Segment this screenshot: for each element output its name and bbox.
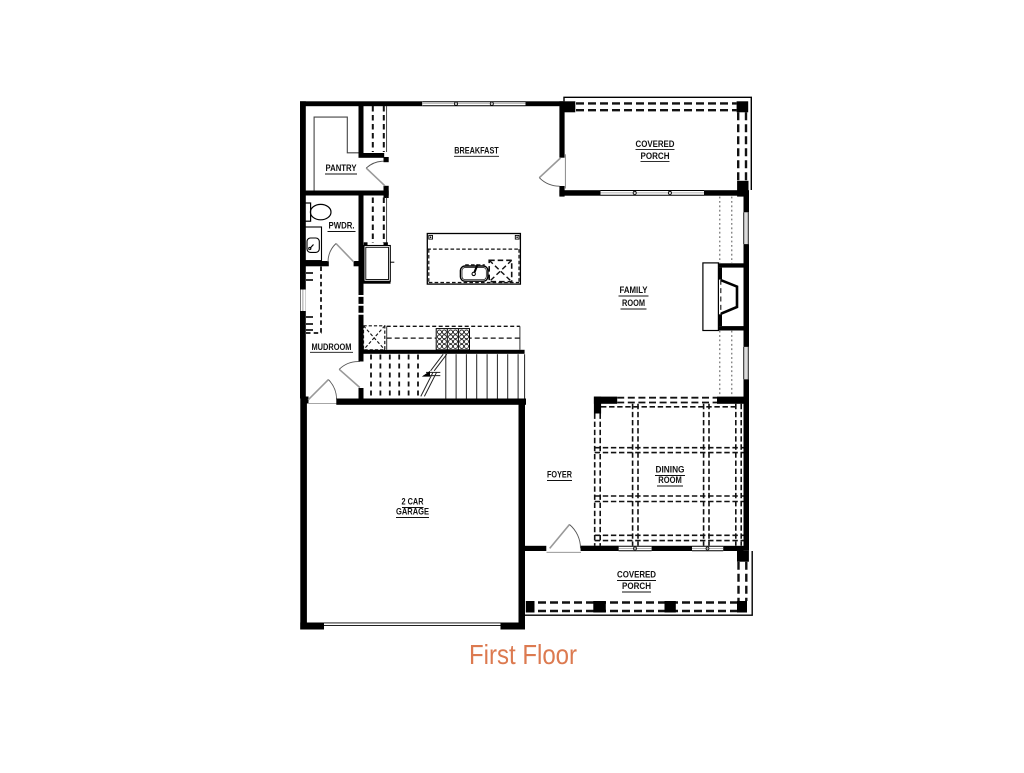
svg-text:First Floor: First Floor (469, 639, 577, 670)
svg-text:FAMILY: FAMILY (620, 285, 648, 295)
svg-text:ROOM: ROOM (622, 298, 645, 308)
svg-text:PORCH: PORCH (622, 581, 651, 591)
svg-text:GARAGE: GARAGE (396, 507, 429, 517)
svg-text:DINING: DINING (656, 465, 685, 475)
svg-text:ROOM: ROOM (658, 475, 682, 485)
svg-text:PANTRY: PANTRY (326, 163, 357, 173)
svg-text:FOYER: FOYER (547, 470, 572, 480)
svg-text:PORCH: PORCH (641, 151, 670, 161)
svg-text:COVERED: COVERED (636, 139, 675, 149)
svg-text:BREAKFAST: BREAKFAST (454, 146, 499, 156)
svg-text:MUDROOM: MUDROOM (312, 342, 352, 352)
svg-text:2 CAR: 2 CAR (402, 497, 424, 507)
svg-text:COVERED: COVERED (617, 570, 656, 580)
svg-text:PWDR.: PWDR. (329, 221, 355, 231)
